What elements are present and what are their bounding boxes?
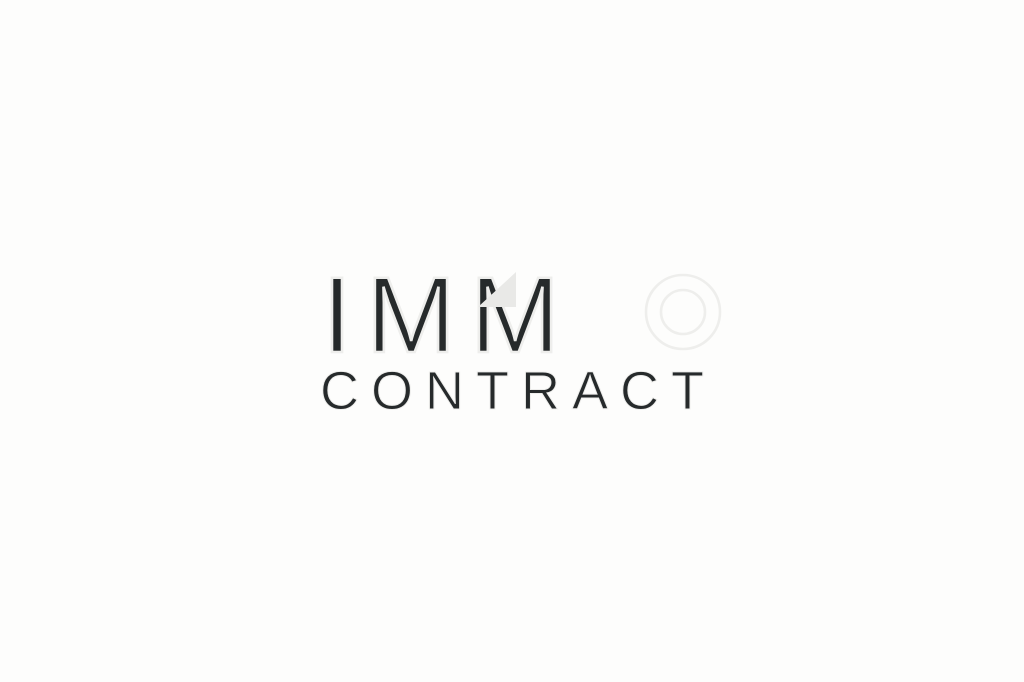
svg-text:CONTRACT: CONTRACT [320, 361, 716, 421]
svg-text:IMM: IMM [322, 254, 574, 375]
